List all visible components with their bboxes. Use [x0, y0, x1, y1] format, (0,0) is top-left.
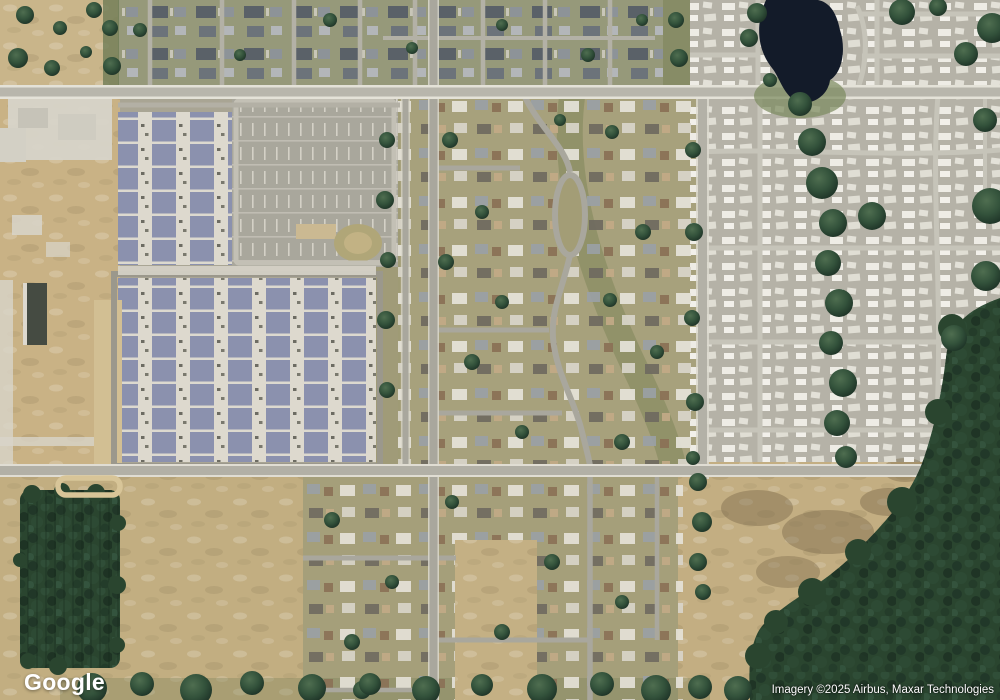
townhome-block-north [118, 112, 232, 265]
main-road-south [0, 466, 929, 475]
townhome-block-south [118, 278, 376, 462]
main-road-north [0, 88, 1000, 97]
satellite-map-viewport[interactable]: Google Imagery ©2025 Airbus, Maxar Techn… [0, 0, 1000, 700]
dirt-road [94, 300, 122, 464]
construction-dark-strip [27, 283, 47, 345]
google-logo[interactable]: Google [24, 669, 105, 696]
clubhouse-building [296, 224, 336, 239]
satellite-imagery [0, 0, 1000, 700]
imagery-attribution: Imagery ©2025 Airbus, Maxar Technologies [772, 684, 994, 696]
top-neighborhood-houses [120, 0, 663, 88]
forest-bottom-left [13, 483, 126, 675]
vertical-road-center [430, 0, 438, 700]
street-x405 [403, 95, 409, 467]
